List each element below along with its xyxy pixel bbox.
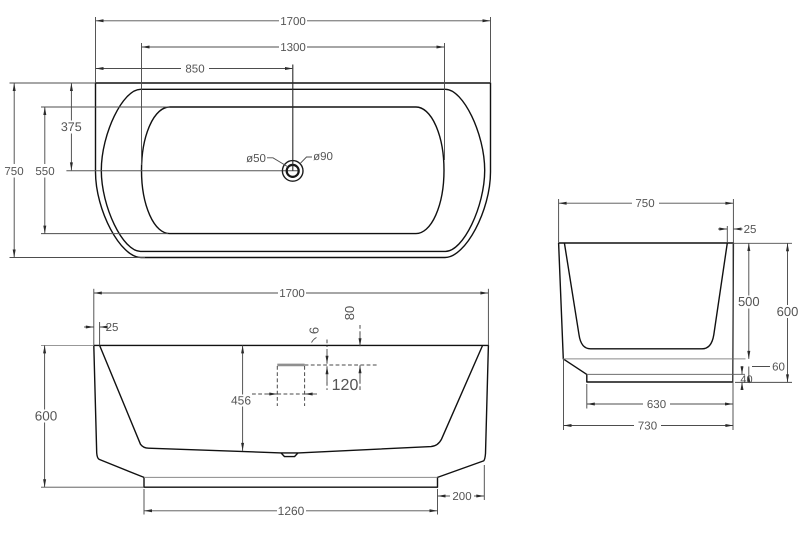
svg-text:750: 750 (635, 198, 654, 210)
svg-text:500: 500 (738, 294, 760, 309)
svg-text:25: 25 (106, 322, 119, 334)
svg-text:ø50: ø50 (246, 153, 266, 165)
svg-text:120: 120 (332, 377, 359, 394)
svg-text:80: 80 (342, 306, 357, 320)
svg-text:1700: 1700 (279, 288, 305, 300)
svg-text:550: 550 (35, 166, 54, 178)
svg-text:40: 40 (740, 374, 752, 386)
svg-text:60: 60 (772, 362, 785, 374)
svg-text:6: 6 (307, 327, 322, 334)
svg-text:25: 25 (744, 224, 757, 236)
svg-text:1260: 1260 (278, 504, 305, 518)
svg-text:750: 750 (4, 166, 23, 178)
svg-text:600: 600 (35, 408, 58, 423)
svg-text:630: 630 (647, 399, 666, 411)
svg-text:456: 456 (231, 394, 251, 408)
svg-text:600: 600 (777, 304, 799, 319)
svg-text:730: 730 (638, 421, 657, 433)
svg-text:200: 200 (452, 491, 471, 503)
svg-text:375: 375 (61, 120, 82, 134)
svg-text:850: 850 (185, 64, 204, 76)
svg-text:ø90: ø90 (313, 151, 333, 163)
svg-text:1300: 1300 (280, 42, 306, 54)
svg-text:1700: 1700 (280, 16, 306, 28)
